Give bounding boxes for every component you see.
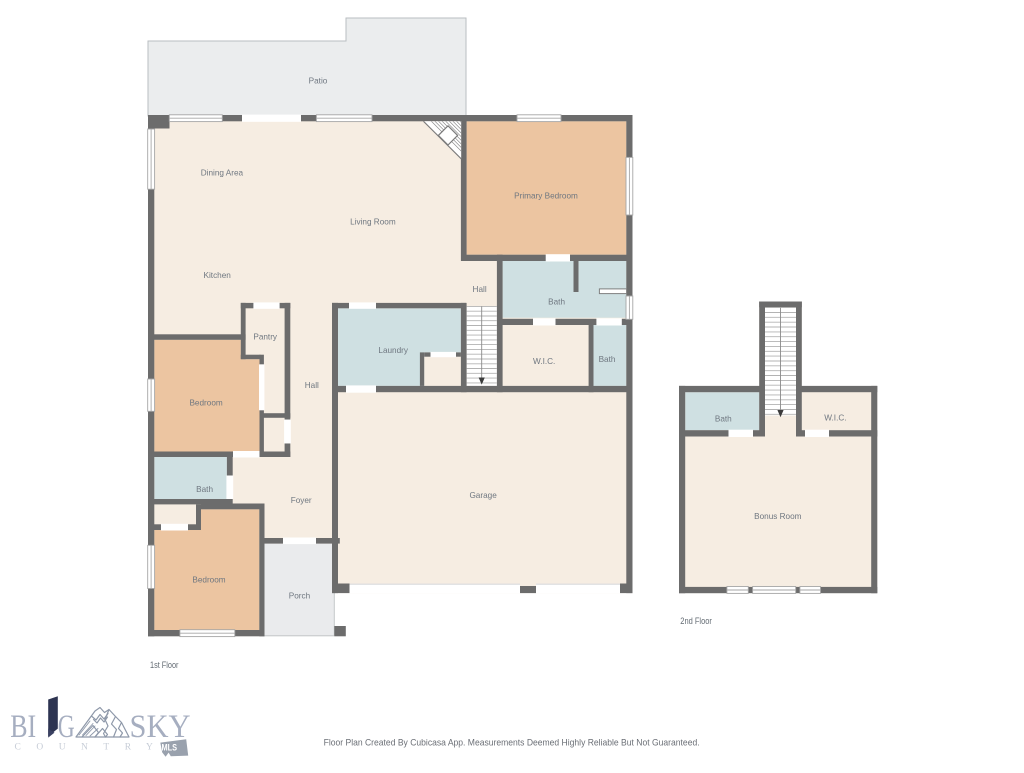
svg-text:Primary Bedroom: Primary Bedroom <box>514 191 578 200</box>
svg-text:W.I.C.: W.I.C. <box>824 414 846 423</box>
svg-text:MLS: MLS <box>162 743 178 753</box>
svg-text:Porch: Porch <box>289 592 311 601</box>
svg-text:Laundry: Laundry <box>378 346 408 355</box>
svg-text:BI: BI <box>10 709 36 745</box>
svg-text:G: G <box>58 709 75 745</box>
svg-text:COUNTRY: COUNTRY <box>15 742 169 752</box>
svg-text:2nd Floor: 2nd Floor <box>680 616 712 626</box>
svg-text:Garage: Garage <box>469 491 497 500</box>
svg-text:1st Floor: 1st Floor <box>150 660 179 670</box>
svg-text:Floor Plan Created By Cubicasa: Floor Plan Created By Cubicasa App. Meas… <box>324 736 700 747</box>
svg-text:Patio: Patio <box>309 77 328 86</box>
svg-text:Living Room: Living Room <box>350 218 396 227</box>
svg-text:Bath: Bath <box>196 485 213 494</box>
svg-text:Dining Area: Dining Area <box>201 169 244 178</box>
svg-text:Hall: Hall <box>305 381 319 390</box>
svg-text:Bath: Bath <box>599 355 616 364</box>
svg-text:W.I.C.: W.I.C. <box>533 357 555 366</box>
svg-text:Bedroom: Bedroom <box>192 576 225 585</box>
svg-text:Pantry: Pantry <box>253 333 278 342</box>
svg-text:SKY: SKY <box>130 709 191 745</box>
svg-text:Bedroom: Bedroom <box>189 399 222 408</box>
svg-text:Bonus Room: Bonus Room <box>754 512 802 521</box>
svg-text:Bath: Bath <box>715 414 732 423</box>
svg-text:Foyer: Foyer <box>291 496 312 505</box>
svg-text:Bath: Bath <box>548 298 565 307</box>
svg-text:Kitchen: Kitchen <box>204 271 232 280</box>
svg-text:Hall: Hall <box>473 285 487 294</box>
